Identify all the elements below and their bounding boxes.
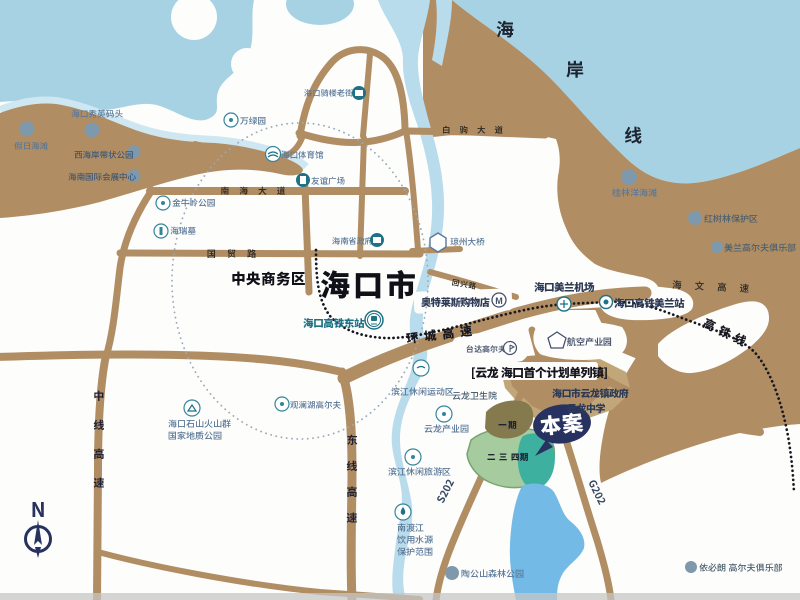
svg-text:中: 中 xyxy=(94,388,105,404)
svg-text:线: 线 xyxy=(347,458,358,474)
svg-text:东: 东 xyxy=(347,432,358,448)
svg-text:西海岸带状公园: 西海岸带状公园 xyxy=(74,149,134,161)
svg-text:滨江休闲旅游区: 滨江休闲旅游区 xyxy=(388,465,451,478)
svg-text:高: 高 xyxy=(94,446,105,462)
svg-text:观澜湖高尔夫: 观澜湖高尔夫 xyxy=(289,399,342,411)
svg-text:美兰高尔夫俱乐部: 美兰高尔夫俱乐部 xyxy=(724,241,796,254)
svg-text:海口高铁东站: 海口高铁东站 xyxy=(303,316,365,331)
svg-text:南海大道: 南海大道 xyxy=(220,184,295,197)
svg-text:一期: 一期 xyxy=(498,419,518,431)
svg-text:保护范围: 保护范围 xyxy=(396,545,433,558)
svg-text:假日海滩: 假日海滩 xyxy=(14,140,49,152)
svg-text:岸: 岸 xyxy=(566,56,584,82)
svg-text:M: M xyxy=(495,294,503,307)
svg-text:友谊广场: 友谊广场 xyxy=(311,175,346,187)
svg-text:海口高铁美兰站: 海口高铁美兰站 xyxy=(614,296,685,311)
svg-text:金牛岭公园: 金牛岭公园 xyxy=(172,196,216,209)
svg-text:N: N xyxy=(31,494,46,523)
svg-text:航空产业园: 航空产业园 xyxy=(567,335,612,348)
svg-text:线: 线 xyxy=(624,122,642,148)
svg-text:海口市: 海口市 xyxy=(320,261,419,305)
svg-text:国贸路: 国贸路 xyxy=(207,247,267,260)
svg-text:海口美兰机场: 海口美兰机场 xyxy=(534,280,595,295)
svg-text:海口骑楼老街: 海口骑楼老街 xyxy=(304,87,353,99)
svg-text:云龙中学: 云龙中学 xyxy=(567,400,605,415)
svg-text:红树林保护区: 红树林保护区 xyxy=(704,212,758,225)
svg-text:海口体育馆: 海口体育馆 xyxy=(281,149,324,161)
svg-text:海南国际会展中心: 海南国际会展中心 xyxy=(68,171,136,183)
svg-text:琼州大桥: 琼州大桥 xyxy=(450,235,485,248)
svg-text:速: 速 xyxy=(347,510,358,526)
svg-text:云龙卫生院: 云龙卫生院 xyxy=(452,389,498,402)
svg-text:国家地质公园: 国家地质公园 xyxy=(168,429,222,442)
svg-text:中央商务区: 中央商务区 xyxy=(231,268,306,289)
svg-text:海口秀英码头: 海口秀英码头 xyxy=(71,107,123,120)
svg-text:桂林洋海滩: 桂林洋海滩 xyxy=(611,186,657,199)
svg-text:海口市云龙镇政府: 海口市云龙镇政府 xyxy=(552,385,628,400)
svg-text:高: 高 xyxy=(347,484,358,500)
svg-text:万绿园: 万绿园 xyxy=(240,114,266,127)
svg-text:陶公山森林公园: 陶公山森林公园 xyxy=(461,567,524,580)
svg-text:速: 速 xyxy=(94,475,105,491)
svg-text:海: 海 xyxy=(496,16,514,42)
svg-text:依必朗 高尔夫俱乐部: 依必朗 高尔夫俱乐部 xyxy=(699,561,783,574)
svg-text:二 三 四期: 二 三 四期 xyxy=(487,451,529,463)
svg-text:海南省政府: 海南省政府 xyxy=(332,235,373,247)
svg-text:云龙产业园: 云龙产业园 xyxy=(424,422,469,435)
svg-text:[云龙 海口首个计划单列镇]: [云龙 海口首个计划单列镇] xyxy=(471,364,608,381)
svg-text:奥特莱斯购物店: 奥特莱斯购物店 xyxy=(421,294,490,309)
svg-text:台达高尔夫: 台达高尔夫 xyxy=(466,344,507,355)
svg-text:线: 线 xyxy=(94,417,105,433)
svg-text:白驹大道: 白驹大道 xyxy=(442,124,512,136)
svg-text:海瑞墓: 海瑞墓 xyxy=(170,224,196,237)
svg-text:滨江休闲运动区: 滨江休闲运动区 xyxy=(391,385,454,398)
